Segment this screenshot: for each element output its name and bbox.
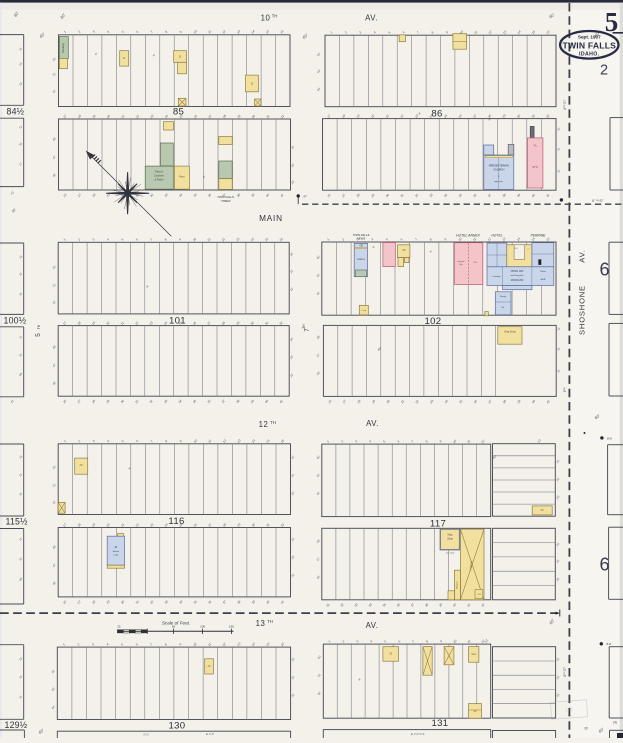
svg-text:Paint &: Paint & [155,171,163,174]
svg-text:E X P O S.: E X P O S. [411,732,426,736]
svg-text:PRESBYTERIAN: PRESBYTERIAN [489,164,509,168]
svg-text:(4): (4) [613,721,617,725]
svg-text:100: 100 [200,625,205,629]
svg-text:6' ᵀᴴ Sᵀ: 6' ᵀᴴ Sᵀ [592,199,604,203]
svg-text:131: 131 [432,718,449,729]
svg-text:CHURCH: CHURCH [493,167,504,171]
svg-text:Pantry: Pantry [500,295,507,298]
svg-text:13: 13 [256,619,266,628]
svg-text:Wag Shop: Wag Shop [504,331,516,334]
svg-text:Coal: Coal [362,310,367,312]
svg-text:20: 20 [79,463,83,467]
svg-text:50: 50 [172,625,176,629]
svg-text:AV.: AV. [365,14,378,23]
svg-text:6ᵀᴴ: 6ᵀᴴ [563,387,567,392]
svg-text:mtg. rms.: mtg. rms. [494,180,504,183]
svg-text:86: 86 [431,109,442,120]
svg-text:HOTEL ANNEX: HOTEL ANNEX [456,233,480,237]
svg-text:Off: Off [359,246,362,248]
svg-text:130: 130 [169,721,186,732]
svg-text:& Paints: & Paints [155,179,165,182]
svg-text:TH: TH [302,324,306,329]
svg-text:2: 2 [600,63,608,79]
svg-text:6ᵀᴴ Sᵀ: 6ᵀᴴ Sᵀ [563,667,567,677]
svg-text:6: 6 [599,555,609,575]
svg-text:Wag: Wag [447,534,453,537]
svg-text:84½: 84½ [7,106,25,116]
svg-text:30: 30 [584,727,588,731]
svg-text:TH: TH [37,324,41,329]
svg-text:TH: TH [272,14,278,19]
svg-text:125: 125 [565,707,574,714]
svg-text:100½: 100½ [4,316,27,326]
svg-text:B.M.: B.M. [607,436,613,440]
svg-text:Iron Clad: Iron Clad [446,553,455,555]
svg-text:TH: TH [270,420,276,425]
svg-text:and Reception: and Reception [511,274,525,277]
svg-text:Plumbing: Plumbing [62,42,65,53]
svg-text:AV.: AV. [366,621,379,630]
svg-text:Sample: Sample [457,261,465,263]
svg-text:Off: Off [474,262,477,264]
svg-text:Steam: Steam [113,550,119,553]
svg-text:“TIMES”: “TIMES” [220,199,232,203]
svg-text:Off: Off [515,248,518,250]
svg-text:Parlor: Parlor [540,271,546,273]
svg-text:DINING RM: DINING RM [511,280,523,282]
svg-text:115½: 115½ [6,517,29,527]
svg-text:PERRINE: PERRINE [530,233,546,237]
svg-text:12: 12 [259,420,269,429]
svg-text:B&B: B&B [541,279,546,281]
svg-text:101: 101 [169,316,186,327]
svg-text:AV.: AV. [366,419,379,428]
svg-text:Off: Off [402,249,406,252]
svg-text:6: 6 [599,260,609,280]
svg-text:NEWS: NEWS [357,237,366,241]
svg-text:Shop: Shop [447,538,453,541]
svg-text:SHOSHONE: SHOSHONE [578,285,587,335]
svg-text:Kit.: Kit. [501,306,505,309]
svg-text:Crockery: Crockery [154,175,164,178]
svg-text:Paint: Paint [179,176,185,179]
svg-text:AV.: AV. [578,249,587,262]
svg-text:Off: Off [478,594,481,596]
svg-text:PRINTG: PRINTG [357,259,366,261]
svg-text:Wagons: Wagons [456,580,458,589]
svg-text:ST'G: ST'G [532,166,538,169]
svg-text:N O: N O [143,733,149,737]
svg-text:E X P.: E X P. [206,732,214,736]
svg-text:HOTEL: HOTEL [491,233,502,237]
svg-text:IDAHO.: IDAHO. [579,52,600,58]
svg-text:Scale of Feet.: Scale of Feet. [162,621,190,626]
svg-text:129½: 129½ [5,720,28,730]
svg-text:20: 20 [388,653,392,656]
svg-text:MAIN: MAIN [259,214,283,223]
svg-text:Laundry: Laundry [493,276,502,278]
svg-text:B.M.: B.M. [607,642,613,646]
svg-text:Rm: Rm [459,264,463,266]
svg-text:TH: TH [267,619,273,624]
svg-text:6ᵀᴴ Sᵀ: 6ᵀᴴ Sᵀ [563,100,567,110]
svg-text:TWIN FALLS: TWIN FALLS [563,40,617,50]
svg-text:150: 150 [229,625,234,629]
svg-text:HOTEL OFF: HOTEL OFF [511,271,524,273]
svg-text:10: 10 [261,14,271,23]
svg-text:5: 5 [35,333,42,337]
